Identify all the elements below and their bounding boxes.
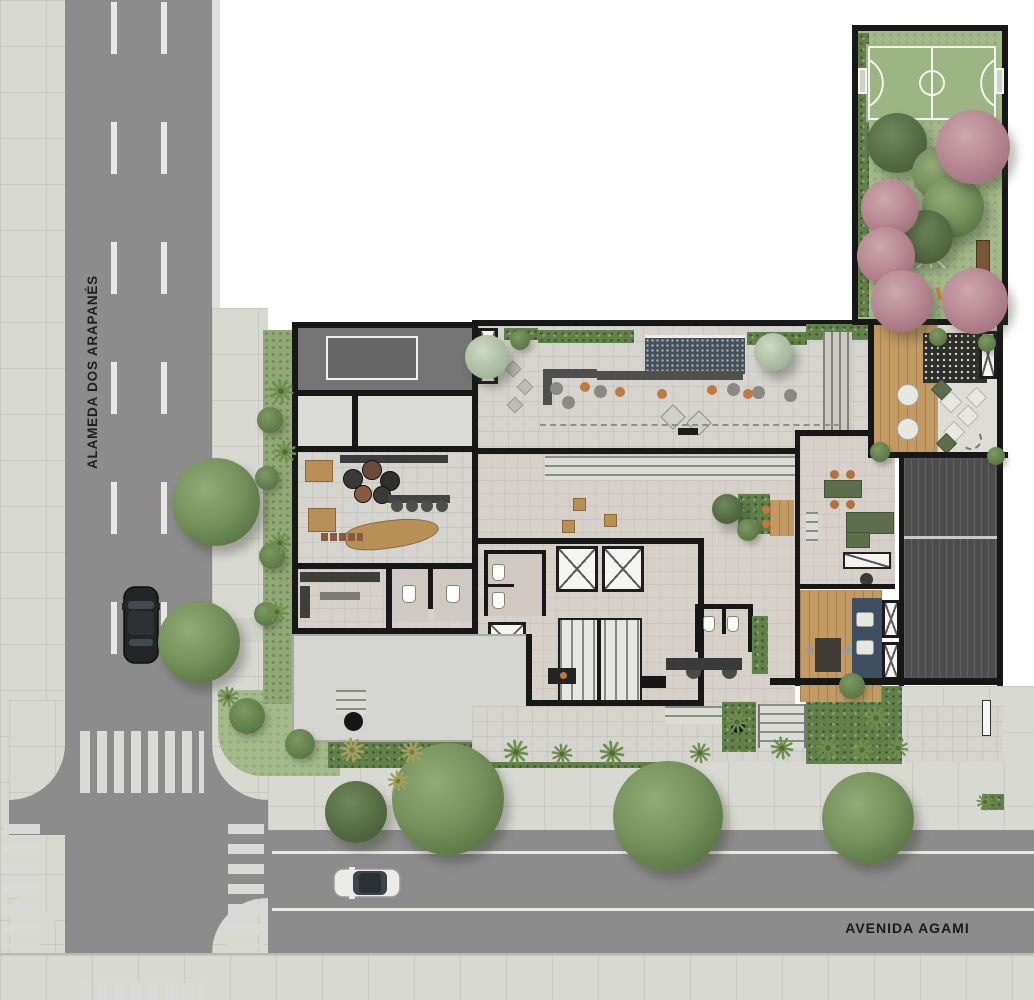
terrace-hedge — [504, 328, 538, 340]
lane-line-top — [272, 851, 1034, 854]
kitchen-counter-side — [300, 586, 310, 618]
orange-cushion — [615, 387, 625, 397]
kitchen-counter — [300, 572, 380, 582]
garage-ramp — [904, 441, 997, 681]
elevator — [979, 331, 997, 379]
wall — [292, 322, 298, 634]
hall-planter — [738, 494, 770, 534]
toilet — [727, 616, 739, 632]
storage-room-b — [358, 396, 473, 446]
wall — [484, 584, 514, 587]
wall — [292, 322, 478, 328]
curb-strip — [212, 0, 220, 310]
orange-chair — [846, 500, 855, 509]
cafe-table — [573, 498, 586, 511]
elevator — [556, 546, 598, 592]
pouf — [550, 382, 563, 395]
site-plan: ALAMEDA DOS ARAPANÉS AVENIDA AGAMI — [0, 0, 1034, 1000]
toilet — [446, 585, 460, 603]
wall — [428, 569, 433, 609]
pouf — [752, 386, 765, 399]
cafe-table — [562, 520, 575, 533]
futsal-court — [866, 44, 998, 122]
wall — [484, 550, 488, 616]
armchair — [856, 612, 874, 627]
orange-chair — [830, 470, 839, 479]
wall — [484, 550, 546, 554]
wall — [997, 436, 1003, 686]
round-table — [897, 418, 919, 440]
water-edge — [645, 335, 745, 338]
technical-room-pit — [326, 336, 418, 380]
desk-chair — [762, 520, 770, 528]
elevator — [602, 546, 644, 592]
green-table — [824, 480, 862, 498]
water-feature — [645, 338, 745, 374]
stool — [843, 646, 851, 654]
sidewalk-band-south — [268, 760, 1034, 830]
lane-line-bottom — [272, 908, 1034, 911]
bar-counter — [340, 455, 448, 463]
wall — [542, 550, 546, 616]
wall — [795, 584, 895, 589]
terrace-hedge — [538, 330, 634, 343]
wall — [722, 604, 726, 634]
orange-chair — [846, 470, 855, 479]
lane-dashes-right — [161, 2, 167, 690]
orange-cushion — [707, 385, 717, 395]
toilet — [492, 564, 505, 581]
planter-tree-pit — [731, 719, 745, 733]
car-black — [122, 585, 160, 665]
stair-to-sidewalk — [758, 704, 806, 748]
planting-strip-west — [263, 330, 294, 704]
toilet — [492, 592, 505, 609]
pouf — [594, 385, 607, 398]
wall — [297, 390, 473, 396]
pouf — [784, 389, 797, 402]
goal — [858, 68, 867, 94]
wall — [868, 319, 874, 458]
stair-divider — [597, 618, 601, 702]
gatehouse-wall — [640, 676, 666, 688]
wall — [695, 604, 700, 652]
street-label-avenida: AVENIDA AGAMI — [800, 920, 1015, 940]
wall — [472, 448, 802, 454]
ramp-gate — [982, 700, 991, 736]
wall — [352, 392, 358, 448]
stool — [806, 646, 814, 654]
green-sofa — [846, 512, 894, 534]
dining-table — [308, 508, 336, 532]
wall — [795, 436, 800, 686]
wall — [297, 446, 473, 452]
lane-dashes-left — [111, 2, 117, 690]
wall — [770, 678, 1003, 685]
crosswalk-east — [228, 824, 264, 946]
pouf — [562, 396, 575, 409]
wall — [472, 538, 702, 544]
forecourt-steps — [336, 690, 366, 714]
orange-chair — [830, 500, 839, 509]
garden-wall — [852, 25, 1008, 31]
wall — [297, 563, 473, 569]
lounge-chair — [362, 460, 382, 480]
small-planter — [982, 794, 1004, 810]
reception-planter — [752, 616, 768, 674]
bench-slats — [806, 512, 818, 542]
orange-cushion — [657, 389, 667, 399]
louver-band — [545, 456, 795, 480]
patterned-rug — [923, 333, 987, 383]
hall-desk — [770, 500, 794, 536]
dining-table — [305, 460, 333, 482]
bar-stool — [406, 500, 418, 512]
slatted-deck — [823, 332, 852, 446]
crosswalk-north — [80, 731, 204, 793]
elevator — [882, 642, 900, 680]
orange-cushion — [743, 389, 753, 399]
tree-pit — [344, 712, 363, 731]
bench-black — [678, 428, 698, 435]
orange-cushion — [580, 382, 590, 392]
bar-stool — [436, 500, 448, 512]
crosswalk-west — [4, 824, 40, 946]
wall — [997, 319, 1003, 458]
armchair — [856, 640, 874, 655]
wall — [868, 452, 1008, 458]
boundary-dashed-line — [540, 424, 840, 426]
x-desk — [843, 552, 891, 569]
lounge-chair — [354, 485, 372, 503]
wall — [386, 566, 392, 628]
elevator — [882, 600, 900, 638]
ramp-divider — [904, 536, 997, 539]
desk-chair — [762, 506, 770, 514]
bar-stool — [391, 500, 403, 512]
street-label-alameda: ALAMEDA DOS ARAPANÉS — [85, 257, 103, 487]
kitchen-island — [320, 592, 360, 600]
crosswalk-south — [80, 983, 204, 1000]
round-table — [897, 384, 919, 406]
garden-wall — [852, 319, 1008, 325]
green-sofa-chaise — [846, 532, 870, 548]
toilet — [703, 616, 715, 632]
car-white — [333, 867, 401, 899]
service-shaft — [478, 328, 498, 384]
sidewalk-east-of-road — [212, 308, 268, 702]
goal — [995, 68, 1004, 94]
hammock — [916, 240, 946, 268]
bar-stool — [421, 500, 433, 512]
terrace-hedge — [747, 332, 807, 345]
blue-sofa-platform — [852, 598, 882, 680]
kitchenette-item — [560, 672, 567, 679]
wall — [899, 436, 904, 686]
cowork-table — [815, 638, 841, 672]
pouf — [727, 383, 740, 396]
charcoal-path — [597, 371, 743, 380]
bench-row — [321, 533, 363, 541]
toilet — [402, 585, 416, 603]
storage-room-a — [297, 396, 352, 446]
garden-bench — [976, 240, 990, 272]
spiral-stair — [960, 428, 982, 450]
reception-desk — [666, 658, 742, 670]
cafe-table — [604, 514, 617, 527]
